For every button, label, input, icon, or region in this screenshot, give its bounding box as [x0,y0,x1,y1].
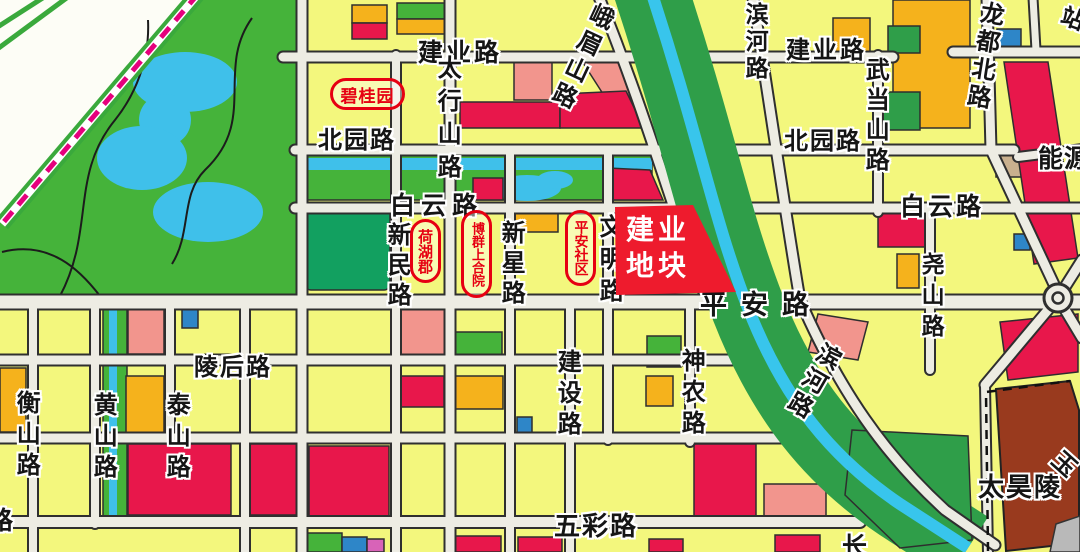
road-label-jianye-east: 建业路 [786,38,867,63]
landmark-pingan-shequ: 平安社区 [565,210,596,286]
jianye-parcel-label-line2: 地块 [626,248,690,284]
jianye-parcel-label: 建业 地块 [626,212,690,285]
jianye-parcel-label-line1: 建业 [626,212,690,248]
road-label-jianshe: 建设路 [554,349,579,442]
road-label-xinmin: 新民路 [384,222,409,312]
landmark-hehujun: 荷湖郡 [410,219,441,283]
road-label-wudangshan: 武当山路 [862,57,887,177]
planning-map: 建业路 建业路 北园路 北园路 白云路 白云路 平安路 陵后路 五彩路 太昊陵 … [0,0,1080,552]
road-label-xinxing: 新星路 [498,220,523,310]
road-label-taihangshan: 太行山路 [434,55,459,187]
road-label-lu-partial: 路 [0,508,13,534]
road-label-huangshan: 黄山路 [90,392,115,485]
road-label-linghou: 陵后路 [194,355,272,380]
road-label-baiyun-east: 白云路 [900,194,984,220]
road-label-chang-partial: 长 [842,534,867,552]
landmark-boqun-shangheyuan: 博群上合院 [461,210,492,298]
road-label-beiyuan-west: 北园路 [318,128,396,153]
roundabout [1044,284,1072,312]
road-label-binhe-north: 滨河路 [742,2,766,83]
road-label-shennong: 神农路 [678,348,703,441]
road-label-wucai: 五彩路 [554,514,638,541]
road-label-hengshan: 衡山路 [13,390,38,483]
road-label-taishan: 泰山路 [163,392,188,485]
road-label-nengyuan: 能源 [1038,146,1080,172]
road-label-yaoshan: 尧山路 [918,252,942,345]
road-label-beiyuan-east: 北园路 [784,129,862,154]
road-label-pingan: 平安路 [700,292,823,320]
landmark-label-taihaoling: 太昊陵 [978,475,1062,502]
landmark-biguiyuan: 碧桂园 [330,78,405,110]
